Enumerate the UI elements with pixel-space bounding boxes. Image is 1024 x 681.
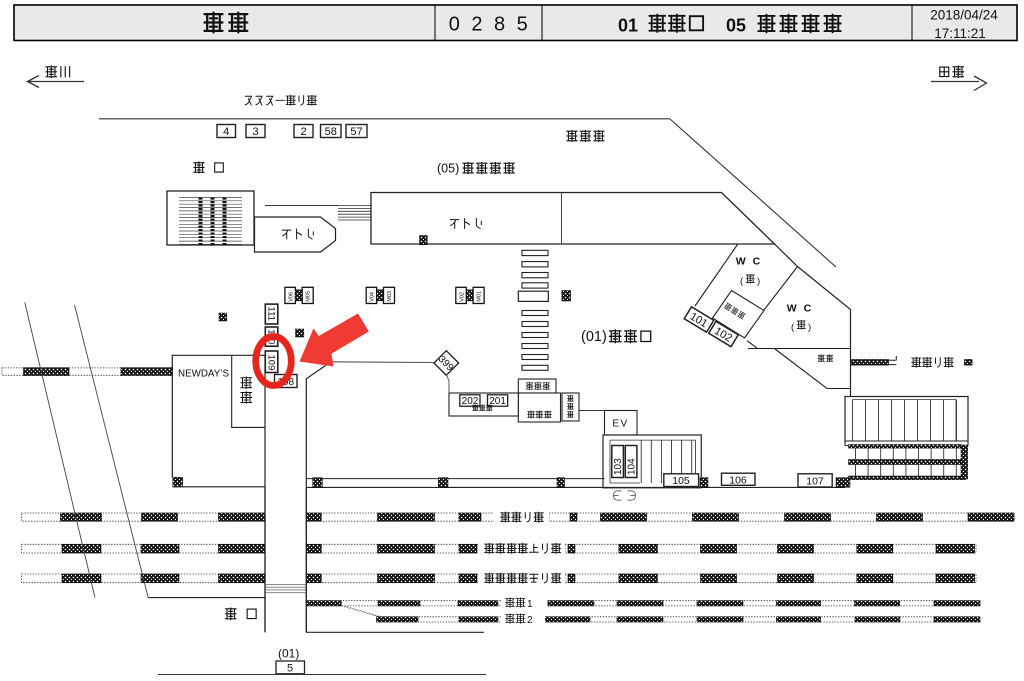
svg-text:2: 2: [300, 126, 306, 138]
svg-text:M03: M03: [387, 291, 393, 302]
svg-text:111: 111: [265, 307, 276, 321]
svg-text:01: 01: [618, 16, 638, 36]
svg-text:): ): [757, 276, 760, 287]
svg-text:103: 103: [613, 458, 624, 475]
svg-text:V04: V04: [370, 292, 376, 302]
svg-text:(: (: [740, 276, 744, 287]
svg-text:17:11:21: 17:11:21: [934, 26, 986, 41]
svg-text:(01): (01): [581, 329, 607, 345]
svg-text:2: 2: [527, 615, 533, 626]
svg-text:V06: V06: [288, 292, 294, 302]
svg-text:106: 106: [729, 474, 747, 486]
svg-text:202: 202: [462, 396, 479, 407]
svg-text:05: 05: [726, 16, 746, 36]
svg-text:NEWDAY’S: NEWDAY’S: [178, 369, 229, 380]
svg-text:4: 4: [223, 126, 229, 138]
svg-text:57: 57: [350, 126, 362, 138]
svg-text:58: 58: [325, 126, 337, 138]
svg-text:M01: M01: [476, 291, 482, 302]
svg-text:(01): (01): [278, 647, 299, 661]
svg-text:M05: M05: [306, 291, 312, 302]
svg-text:105: 105: [672, 475, 690, 487]
svg-text:V02: V02: [459, 292, 465, 302]
svg-text:0285: 0285: [449, 14, 540, 36]
svg-text:201: 201: [489, 396, 506, 407]
svg-text:(05): (05): [437, 162, 459, 176]
svg-text:2018/04/24: 2018/04/24: [930, 8, 998, 23]
svg-text:1: 1: [527, 599, 533, 610]
svg-text:W C: W C: [787, 303, 813, 315]
svg-text:5: 5: [287, 663, 293, 675]
svg-text:(: (: [791, 322, 795, 333]
svg-text:W C: W C: [736, 256, 762, 268]
svg-text:): ): [808, 322, 811, 333]
svg-text:3: 3: [252, 126, 258, 138]
svg-text:104: 104: [627, 458, 638, 475]
svg-text:109: 109: [265, 355, 276, 371]
svg-text:EV: EV: [612, 419, 628, 430]
svg-text:107: 107: [806, 475, 824, 487]
